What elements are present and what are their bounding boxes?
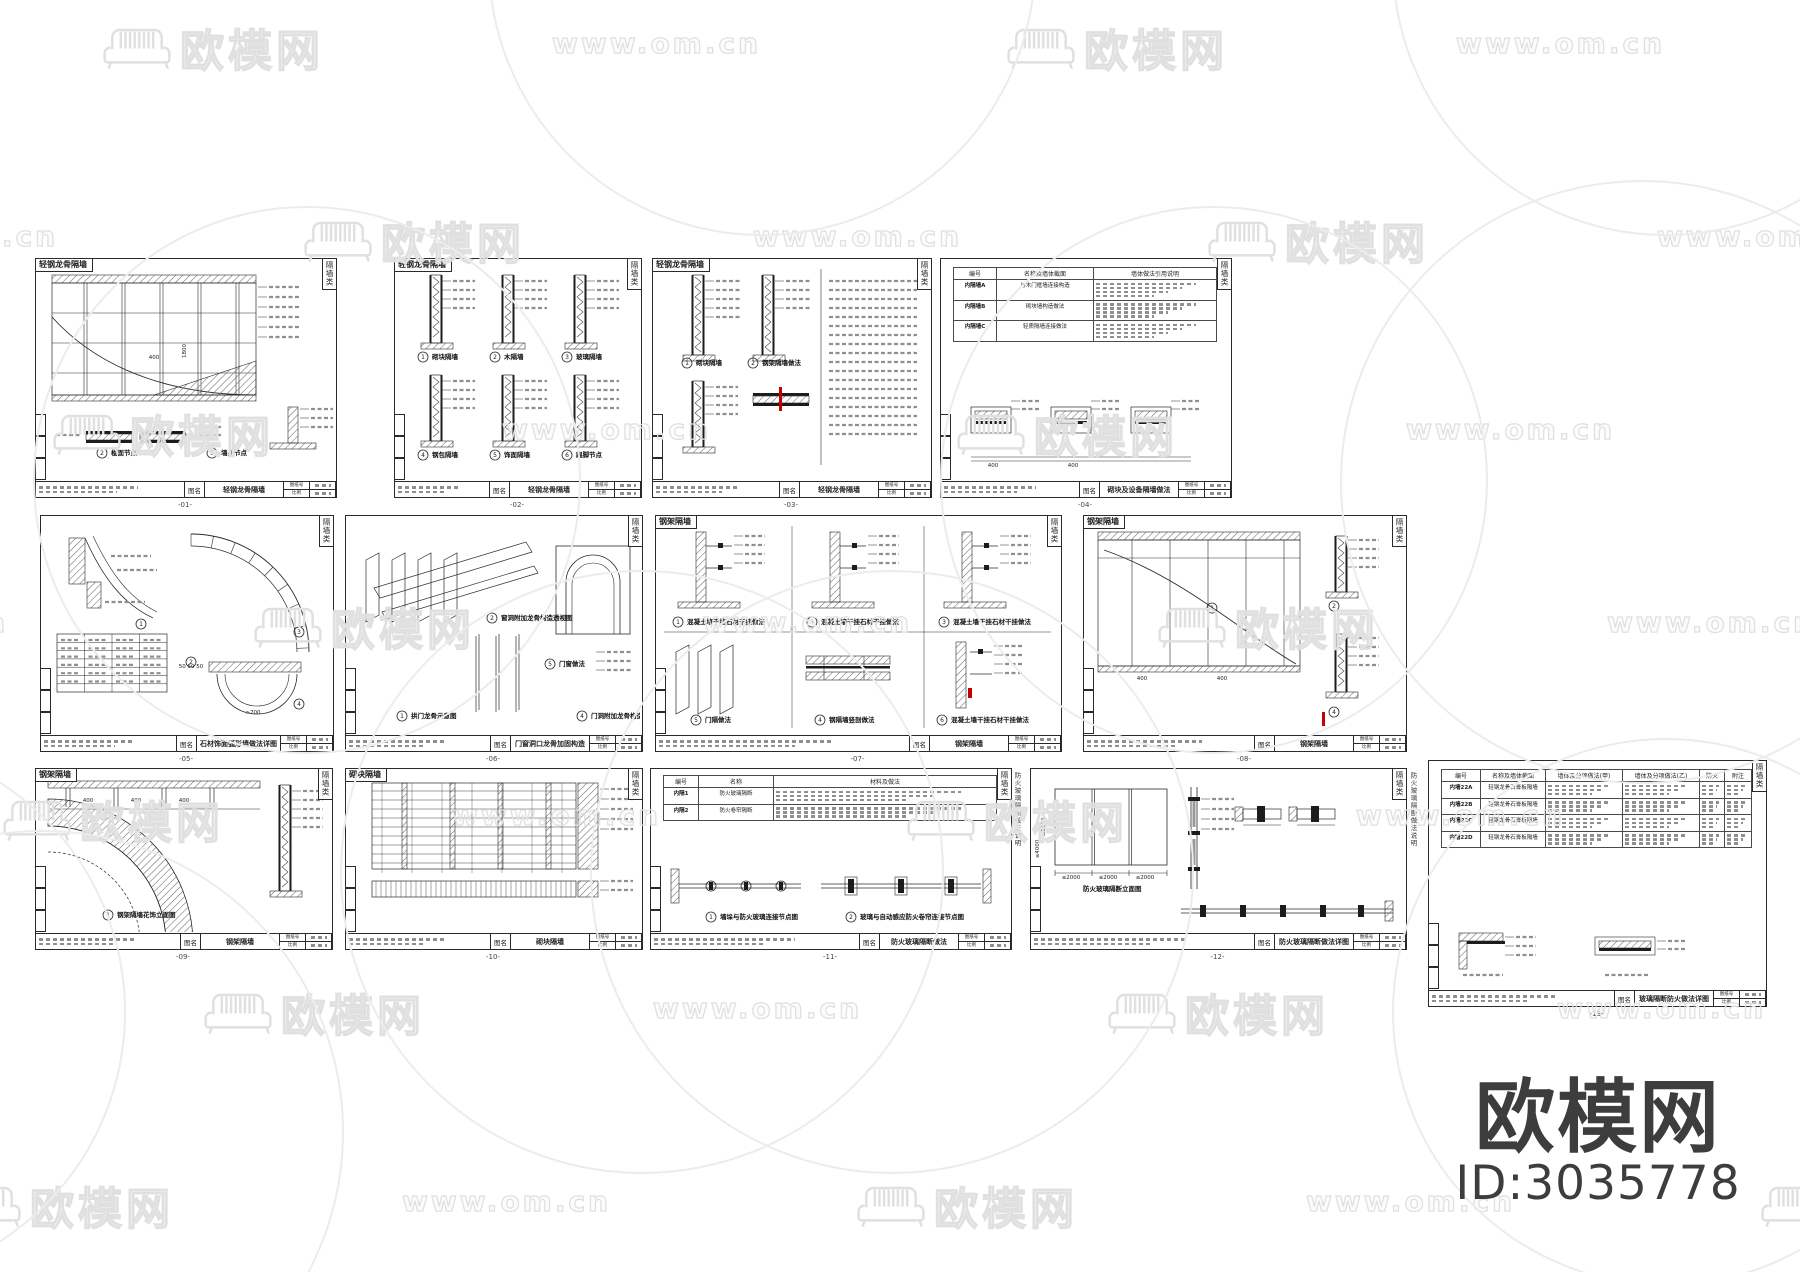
table-cell: 砌块墙构造做法 xyxy=(997,300,1094,321)
detail-caption: 1墙垛与防火玻璃连接节点图 xyxy=(706,912,799,922)
cad-sheet: 隔墙类 400400编号名称及墙体截面墙体做法引用说明内隔墙A与木门框墙连接构造… xyxy=(940,258,1232,498)
title-block-meta-value xyxy=(307,744,333,752)
title-block-meta-value xyxy=(310,490,336,498)
detail-caption: 5门隔做法 xyxy=(691,715,732,725)
title-block-name-label: 图名 xyxy=(490,934,510,949)
title-block-meta-label: 图纸号 xyxy=(1354,934,1380,942)
table-cell xyxy=(1725,831,1752,848)
cell-text-blur xyxy=(1727,809,1740,812)
page-number: -02- xyxy=(510,501,524,509)
svg-text:5: 5 xyxy=(694,717,698,724)
meta-value-blur xyxy=(621,944,637,947)
title-block-note xyxy=(1084,736,1254,751)
meta-value-blur xyxy=(1385,738,1401,741)
watermark-site-text: www.om.cn xyxy=(552,27,761,60)
table-header-cell: 编号 xyxy=(954,268,997,280)
svg-text:2: 2 xyxy=(751,360,755,367)
cell-text-blur xyxy=(1625,805,1678,808)
dimension-text: 50 50 50 xyxy=(179,664,204,670)
svg-text:混凝土墙干挂石材干挂做法: 混凝土墙干挂石材干挂做法 xyxy=(953,617,1032,626)
watermark-site-text: www.om.cn xyxy=(552,27,761,60)
note-text-blur xyxy=(39,486,138,489)
meta-value-blur xyxy=(315,492,331,495)
meta-value-blur xyxy=(990,936,1006,939)
cell-text-blur xyxy=(1548,805,1601,808)
svg-text:4: 4 xyxy=(297,701,301,708)
meta-value-blur xyxy=(1385,936,1401,939)
title-block-meta: 图纸号比例 xyxy=(589,934,642,949)
svg-text:3: 3 xyxy=(565,354,569,361)
title-block-name-label: 图名 xyxy=(1254,934,1274,949)
title-block-meta-value xyxy=(616,942,642,950)
cell-text-blur xyxy=(1096,283,1196,286)
title-block-meta-label: 图纸号 xyxy=(590,736,616,744)
cell-text-blur xyxy=(776,807,961,810)
meta-value-blur xyxy=(1210,484,1226,487)
title-block-meta-label: 比例 xyxy=(879,490,905,498)
svg-text:1: 1 xyxy=(1210,605,1214,612)
cell-text-blur xyxy=(1096,295,1154,298)
svg-text:钢包隔墙: 钢包隔墙 xyxy=(432,450,459,459)
cell-text-blur xyxy=(1702,842,1714,845)
title-block-meta: 图纸号比例 xyxy=(279,934,332,949)
svg-text:5: 5 xyxy=(548,661,552,668)
sheet-category-tab: 隔墙类 xyxy=(1392,515,1407,547)
title-block-sheet-title: 门窗洞口龙骨加固构造 xyxy=(510,736,589,751)
sheet-drawing: 1混凝土墙干挂石材干挂做法 2混凝土墙干挂石材干挂做法 3混凝土墙干挂石材干挂做… xyxy=(656,516,1059,734)
table-cell xyxy=(1700,815,1725,832)
note-text-blur xyxy=(44,740,134,743)
cell-text-blur xyxy=(1702,822,1717,825)
cell-text-blur xyxy=(1096,336,1154,339)
page-number: -08- xyxy=(1237,755,1251,763)
cell-text-blur xyxy=(1548,842,1592,845)
table-cell xyxy=(1725,782,1752,799)
cell-text-blur xyxy=(1625,809,1669,812)
table-cell: 内隔2 xyxy=(664,804,699,821)
cell-text-blur xyxy=(1702,809,1714,812)
svg-text:1: 1 xyxy=(106,912,110,919)
title-block-sheet-title: 砌块及设备隔墙做法 xyxy=(1099,482,1178,497)
svg-text:混凝土墙干挂石材干挂做法: 混凝土墙干挂石材干挂做法 xyxy=(821,617,900,626)
watermark-site-text: www.om.cn xyxy=(653,992,862,1025)
sofa-icon xyxy=(201,986,275,1038)
watermark-site-text: www.om.cn xyxy=(1406,413,1615,446)
table-header-cell: 墙体及分项做法(乙) xyxy=(1623,770,1700,782)
svg-text:1: 1 xyxy=(139,621,143,628)
cell-text-blur xyxy=(1702,838,1717,841)
dimension-text: 400 xyxy=(131,798,142,804)
svg-text:2: 2 xyxy=(1332,603,1336,610)
table-header-row: 编号名称及墙体截面墙体做法引用说明 xyxy=(954,268,1217,280)
cell-text-blur xyxy=(1625,818,1686,821)
meta-value-blur xyxy=(910,484,926,487)
svg-text:窗洞附加龙骨构造透视图: 窗洞附加龙骨构造透视图 xyxy=(501,613,573,622)
detail-caption: 2木隔墙 xyxy=(490,352,524,362)
sheet-drawing xyxy=(346,769,640,932)
site-branding: 欧模网 ID:3035778 xyxy=(1448,1078,1748,1210)
title-block-meta-label: 比例 xyxy=(284,490,310,498)
cad-sheet: 隔墙类 1拱门龙骨示意图 2窗洞附加龙骨构造透视图 4门洞附加龙骨构造透视图 5… xyxy=(345,515,643,752)
sofa-icon xyxy=(1004,21,1078,73)
cad-preview-canvas: 轻钢龙骨隔墙隔墙类 2楼面节点 1墙身节点1800400图名轻钢龙骨隔墙图纸号比… xyxy=(0,0,1800,1272)
title-block: 图名钢架隔墙图纸号比例 xyxy=(36,933,332,949)
cell-text-blur xyxy=(1727,822,1743,825)
title-block-sheet-title: 砌块隔墙 xyxy=(510,934,589,949)
cell-text-blur xyxy=(1625,793,1669,796)
page-number: -05- xyxy=(179,755,193,763)
svg-text:玻璃隔墙: 玻璃隔墙 xyxy=(576,352,603,361)
cell-text-blur xyxy=(776,791,961,794)
title-block: 图名钢架隔墙图纸号比例 xyxy=(1084,735,1406,751)
title-block-meta-label: 比例 xyxy=(589,490,615,498)
svg-text:5: 5 xyxy=(493,452,497,459)
watermark-site-text: www.om.cn xyxy=(753,220,962,253)
meta-value-blur xyxy=(1040,746,1056,749)
title-block-sheet-title: 防火玻璃隔断做法 xyxy=(879,934,958,949)
sheet-category-tab: 隔墙类 xyxy=(917,258,932,290)
title-block-meta-label: 图纸号 xyxy=(959,934,985,942)
cell-text-blur xyxy=(1727,842,1740,845)
detail-caption: 2玻璃与自动感应防火卷帘连接节点图 xyxy=(846,912,965,922)
sheet-category-tab: 隔墙类 xyxy=(627,258,642,290)
table-cell xyxy=(1623,815,1700,832)
table-row: 内墙22C轻钢龙骨石膏板隔墙 xyxy=(1442,815,1752,832)
title-block-meta-value xyxy=(307,736,333,744)
sheet-drawing: 1砌块隔墙 2钢架隔墙做法 xyxy=(653,259,929,480)
watermark-site-text: www.om.cn xyxy=(0,606,8,639)
title-block-name-label: 图名 xyxy=(489,482,509,497)
detail-caption: 2楼面节点 xyxy=(97,448,138,458)
svg-text:门洞附加龙骨构造透视图: 门洞附加龙骨构造透视图 xyxy=(591,711,640,720)
table-cell: 轻钢龙骨石膏板隔墙 xyxy=(1481,831,1546,848)
watermark-logo: 欧模网 xyxy=(100,15,324,79)
title-block-name-label: 图名 xyxy=(180,934,200,949)
table-cell: 内墙22A xyxy=(1442,782,1481,799)
cell-text-blur xyxy=(1625,785,1686,788)
sheet-title-tab: 钢架隔墙 xyxy=(1083,515,1125,529)
table-cell: 轻钢龙骨石膏板隔墙 xyxy=(1481,815,1546,832)
title-block-note xyxy=(36,482,184,497)
dimension-text: 400 xyxy=(179,798,190,804)
title-block-meta-label: 图纸号 xyxy=(281,736,307,744)
table-cell xyxy=(1094,280,1217,301)
svg-text:4: 4 xyxy=(580,713,584,720)
title-block-meta-value xyxy=(615,490,641,498)
svg-text:4: 4 xyxy=(421,452,425,459)
cell-text-blur xyxy=(776,811,935,814)
detail-caption: 4门洞附加龙骨构造透视图 xyxy=(577,711,640,721)
note-text-blur xyxy=(944,491,1017,494)
cell-text-blur xyxy=(1548,789,1601,792)
table-cell xyxy=(1623,782,1700,799)
cad-sheet: 砌块隔墙隔墙类 图名砌块隔墙图纸号比例 xyxy=(345,768,643,950)
svg-text:拱门龙骨示意图: 拱门龙骨示意图 xyxy=(411,711,457,720)
dimension-text: ≤3000 xyxy=(1041,817,1047,836)
table-header-cell: 墙体及分项做法(甲) xyxy=(1546,770,1623,782)
detail-caption: 4钢隔墙竖剖做法 xyxy=(815,715,875,725)
cell-text-blur xyxy=(1096,311,1168,314)
title-block-meta-label: 图纸号 xyxy=(280,934,306,942)
detail-caption: 6混凝土墙干挂石材干挂做法 xyxy=(937,715,1030,725)
dimension-text: 400 xyxy=(1068,463,1079,469)
watermark-site-text: www.om.cn xyxy=(1607,606,1800,639)
page-number: -04- xyxy=(1078,501,1092,509)
sheet-drawing: 1 2 4400400 xyxy=(1084,516,1404,734)
note-text-blur xyxy=(1034,943,1153,946)
cad-sheet: 钢架隔墙隔墙类 1混凝土墙干挂石材干挂做法 2混凝土墙干挂石材干挂做法 3混凝土… xyxy=(655,515,1062,752)
page-number: -03- xyxy=(784,501,798,509)
svg-text:木隔墙: 木隔墙 xyxy=(503,352,524,361)
meta-value-blur xyxy=(910,492,926,495)
note-text-blur xyxy=(659,740,832,743)
cell-text-blur xyxy=(776,815,909,818)
note-text-blur xyxy=(654,938,795,941)
table-cell xyxy=(1725,815,1752,832)
svg-text:楼面节点: 楼面节点 xyxy=(111,448,138,457)
title-block-meta-label: 图纸号 xyxy=(1354,736,1380,744)
sheet-title-tab: 钢架隔墙 xyxy=(35,768,77,782)
dimension-text: 400 xyxy=(1137,676,1148,682)
cell-text-blur xyxy=(1548,838,1601,841)
title-block-meta-label: 比例 xyxy=(1354,744,1380,752)
watermark-logo-text: 欧模网 xyxy=(281,980,425,1044)
title-block: 图名轻钢龙骨隔墙图纸号比例 xyxy=(395,481,641,497)
table-cell: 内墙22B xyxy=(1442,798,1481,815)
cell-text-blur xyxy=(1625,789,1678,792)
detail-caption: 3混凝土墙干挂石材干挂做法 xyxy=(939,617,1032,627)
detail-caption: 1 xyxy=(1207,603,1217,613)
svg-text:钢架隔墙花饰立面图: 钢架隔墙花饰立面图 xyxy=(117,910,176,919)
table-cell xyxy=(1700,782,1725,799)
title-block-meta-label: 图纸号 xyxy=(284,482,310,490)
table-row: 内隔2防火卷帘隔断 xyxy=(664,804,997,821)
title-block-meta-value xyxy=(1035,744,1061,752)
svg-text:2: 2 xyxy=(849,914,853,921)
watermark-logo: 欧模网 xyxy=(0,1173,174,1237)
title-block-name-label: 图名 xyxy=(859,934,879,949)
title-block-note xyxy=(346,736,490,751)
title-block-note xyxy=(653,482,779,497)
note-text-blur xyxy=(944,486,1036,489)
cell-text-blur xyxy=(1727,785,1746,788)
svg-text:门隔做法: 门隔做法 xyxy=(705,715,732,724)
table-header-cell: 名称及墙体截面 xyxy=(997,268,1094,280)
title-block-sheet-title: 钢架隔墙 xyxy=(1274,736,1353,751)
title-block: 图名门窗洞口龙骨加固构造图纸号比例 xyxy=(346,735,642,751)
cell-text-blur xyxy=(1096,315,1154,318)
title-block-note xyxy=(1429,991,1614,1006)
title-block: 图名防火玻璃隔断做法详图图纸号比例 xyxy=(1031,933,1406,949)
note-text-blur xyxy=(349,745,425,748)
table-cell: 轻钢龙骨石膏板隔墙 xyxy=(1481,798,1546,815)
note-text-blur xyxy=(1034,938,1186,941)
title-block-meta-label: 比例 xyxy=(1354,942,1380,950)
watermark-site-text: www.om.cn xyxy=(1657,220,1800,253)
svg-text:6: 6 xyxy=(565,452,569,459)
watermark-site-text: www.om.cn xyxy=(653,992,862,1025)
cad-sheet: 轻钢龙骨隔墙隔墙类 1砌块隔墙 2木隔墙 3玻璃隔墙 4钢包隔墙 5饰面隔墙 6… xyxy=(394,258,642,498)
meta-value-blur xyxy=(1745,993,1761,996)
detail-caption: 1砌块隔墙 xyxy=(418,352,459,362)
title-block-meta-label: 比例 xyxy=(1009,744,1035,752)
meta-value-blur xyxy=(621,936,637,939)
table-row: 内墙22B轻钢龙骨石膏板隔墙 xyxy=(1442,798,1752,815)
sofa-icon xyxy=(0,1179,24,1231)
watermark-site-text: www.om.cn xyxy=(753,220,962,253)
dimension-text: ≤4000 xyxy=(1035,839,1041,858)
title-block-meta: 图纸号比例 xyxy=(1353,934,1406,949)
table-cell xyxy=(1546,798,1623,815)
meta-value-blur xyxy=(312,746,328,749)
note-text-blur xyxy=(349,740,446,743)
svg-text:3: 3 xyxy=(942,619,946,626)
sheet-category-tab: 隔墙类 xyxy=(318,768,333,800)
svg-text:钢架隔墙做法: 钢架隔墙做法 xyxy=(762,358,802,367)
meta-value-blur xyxy=(1385,944,1401,947)
cell-text-blur xyxy=(776,795,935,798)
cell-text-blur xyxy=(1096,303,1196,306)
title-block-meta: 图纸号比例 xyxy=(878,482,931,497)
detail-caption: 2窗洞附加龙骨构造透视图 xyxy=(487,613,573,623)
title-block-note xyxy=(941,482,1079,497)
svg-text:墙垛与防火玻璃连接节点图: 墙垛与防火玻璃连接节点图 xyxy=(720,912,799,921)
watermark-site-text: www.om.cn xyxy=(1406,413,1615,446)
title-block-meta-label: 图纸号 xyxy=(879,482,905,490)
table-cell: 内隔墙B xyxy=(954,300,997,321)
watermark-logo-text: 欧模网 xyxy=(934,1173,1078,1237)
svg-text:1: 1 xyxy=(685,360,689,367)
meta-value-blur xyxy=(1745,1001,1761,1004)
title-block-note xyxy=(656,736,909,751)
sheet-category-tab: 隔墙类 xyxy=(997,768,1012,800)
cell-text-blur xyxy=(1702,826,1714,829)
cell-text-blur xyxy=(1096,324,1196,327)
table-cell xyxy=(774,804,997,821)
title-block-meta-value xyxy=(616,736,642,744)
cell-text-blur xyxy=(1096,328,1182,331)
note-text-blur xyxy=(656,491,722,494)
meta-value-blur xyxy=(1210,492,1226,495)
svg-text:1: 1 xyxy=(400,713,404,720)
table-cell xyxy=(1700,798,1725,815)
table-cell xyxy=(1546,815,1623,832)
table-row: 内墙22D轻钢龙骨石膏板隔墙 xyxy=(1442,831,1752,848)
watermark-site-text: www.om.cn xyxy=(0,606,8,639)
cell-text-blur xyxy=(1548,826,1592,829)
dimension-text: ≤2000 xyxy=(1136,875,1155,881)
table-cell xyxy=(1546,831,1623,848)
note-text-blur xyxy=(1432,1000,1530,1003)
title-block-meta: 图纸号比例 xyxy=(1008,736,1061,751)
note-text-blur xyxy=(39,491,117,494)
cad-sheet: 隔墙类 编号名称及墙体截面墙体及分项做法(甲)墙体及分项做法(乙)防火附注内墙2… xyxy=(1428,760,1767,1007)
cell-text-blur xyxy=(1727,793,1740,796)
svg-text:混凝土墙干挂石材干挂做法: 混凝土墙干挂石材干挂做法 xyxy=(951,715,1030,724)
page-number: -11- xyxy=(823,953,837,961)
detail-caption: 4 xyxy=(1329,707,1339,717)
title-block-meta-label: 比例 xyxy=(1714,999,1740,1007)
table-header-cell: 墙体做法引用说明 xyxy=(1094,268,1217,280)
detail-caption: 3玻璃隔墙 xyxy=(562,352,603,362)
title-block-sheet-title: 轻钢龙骨隔墙 xyxy=(204,482,283,497)
cell-text-blur xyxy=(1096,307,1182,310)
svg-text:1: 1 xyxy=(210,450,214,457)
page-number: -01- xyxy=(178,501,192,509)
svg-text:1: 1 xyxy=(709,914,713,921)
sheet-drawing: 2楼面节点 1墙身节点1800400 xyxy=(36,259,334,480)
sheet-drawing: 1钢架隔墙花饰立面图400400400 xyxy=(36,769,330,932)
watermark-site-text: www.om.cn xyxy=(1657,220,1800,253)
cell-text-blur xyxy=(1727,826,1740,829)
svg-text:防火玻璃隔断立面图: 防火玻璃隔断立面图 xyxy=(1083,884,1142,893)
title-block-meta-label: 图纸号 xyxy=(1179,482,1205,490)
detail-caption: 3 xyxy=(294,627,304,637)
watermark-circle xyxy=(1392,0,1800,236)
table-header-cell: 材料及做法 xyxy=(774,776,997,788)
sheet-drawing: 1 2 3 450 50 50>700 xyxy=(41,516,331,734)
table-cell xyxy=(1700,831,1725,848)
detail-caption: 2 xyxy=(1329,601,1339,611)
detail-caption: 1墙身节点 xyxy=(207,448,248,458)
title-block-sheet-title: 防火玻璃隔断做法详图 xyxy=(1274,934,1353,949)
detail-caption: 5饰面隔墙 xyxy=(490,450,531,460)
title-block-name-label: 图名 xyxy=(1254,736,1274,751)
sheet-title-tab: 轻钢龙骨隔墙 xyxy=(394,258,452,272)
cell-text-blur xyxy=(1625,822,1678,825)
table-cell: 内隔1 xyxy=(664,788,699,805)
table-cell: 轻钢龙骨石膏板隔墙 xyxy=(1481,782,1546,799)
cell-text-blur xyxy=(1096,332,1168,335)
watermark-site-text: www.om.cn xyxy=(0,220,58,253)
cad-sheet: 轻钢龙骨隔墙隔墙类 1砌块隔墙 2钢架隔墙做法图名轻钢龙骨隔墙图纸号比例 xyxy=(652,258,932,498)
sheet-category-tab: 隔墙类 xyxy=(1047,515,1062,547)
detail-caption: 1砌块隔墙 xyxy=(682,358,723,368)
note-text-blur xyxy=(656,486,740,489)
table-cell: 内隔墙C xyxy=(954,321,997,342)
svg-text:1: 1 xyxy=(421,354,425,361)
page-number: -09- xyxy=(176,953,190,961)
cell-text-blur xyxy=(1548,822,1601,825)
title-block-meta: 图纸号比例 xyxy=(589,736,642,751)
svg-text:2: 2 xyxy=(810,619,814,626)
title-block-meta-label: 图纸号 xyxy=(589,482,615,490)
title-block-sheet-title: 钢架隔墙 xyxy=(929,736,1008,751)
svg-text:2: 2 xyxy=(493,354,497,361)
meta-value-blur xyxy=(1040,738,1056,741)
title-block-meta-label: 比例 xyxy=(590,744,616,752)
cad-sheet: 隔墙类 1 2 3 450 50 50>700图名石材饰面弧形墙做法详图图纸号比… xyxy=(40,515,334,752)
table-header-row: 编号名称材料及做法 xyxy=(664,776,997,788)
detail-caption: 防火玻璃隔断立面图 xyxy=(1083,884,1142,893)
title-block-meta-value xyxy=(985,934,1011,942)
table-row: 内墙22A轻钢龙骨石膏板隔墙 xyxy=(1442,782,1752,799)
title-block-name-label: 图名 xyxy=(184,482,204,497)
title-block: 图名石材饰面弧形墙做法详图图纸号比例 xyxy=(41,735,333,751)
watermark-logo: 欧模网 xyxy=(1105,980,1329,1044)
meta-value-blur xyxy=(311,936,327,939)
title-block-meta-label: 图纸号 xyxy=(1714,991,1740,999)
detail-caption: 1 xyxy=(136,619,146,629)
note-text-blur xyxy=(654,943,765,946)
table-cell: 内墙22D xyxy=(1442,831,1481,848)
watermark-logo: 欧模网 xyxy=(1004,15,1228,79)
dimension-text: ≤2000 xyxy=(1099,875,1118,881)
title-block-meta-value xyxy=(1380,942,1406,950)
sheet-data-table: 编号名称及墙体截面墙体及分项做法(甲)墙体及分项做法(乙)防火附注内墙22A轻钢… xyxy=(1441,769,1752,848)
title-block-name-label: 图名 xyxy=(490,736,510,751)
meta-value-blur xyxy=(315,484,331,487)
